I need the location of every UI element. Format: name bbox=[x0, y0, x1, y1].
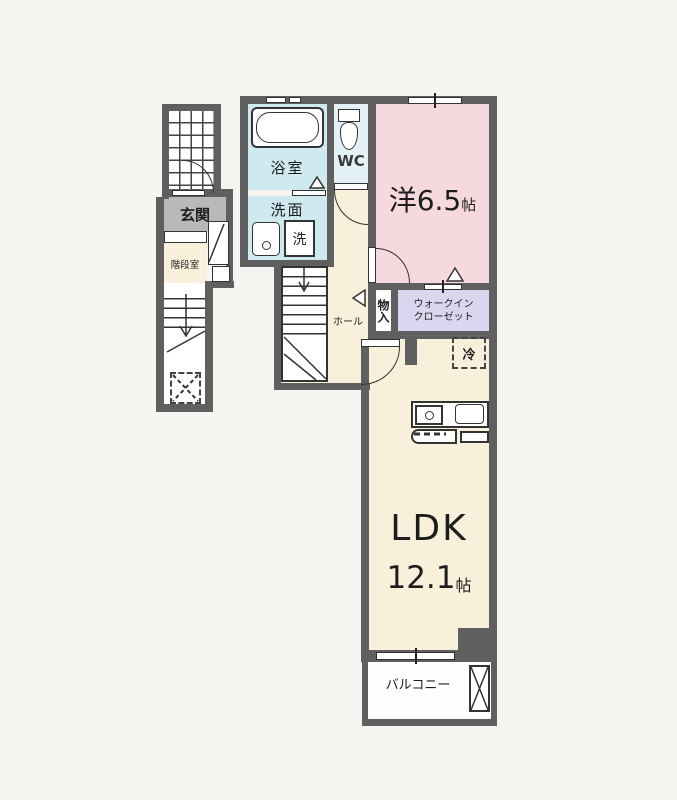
label-fridge: 冷 bbox=[452, 337, 486, 369]
label-western-room: 洋6.5帖 bbox=[376, 181, 489, 217]
window bbox=[408, 97, 462, 104]
window bbox=[424, 284, 462, 290]
window bbox=[376, 652, 455, 660]
wall bbox=[361, 347, 369, 662]
label-bath: 浴室 bbox=[248, 157, 327, 177]
washbasin-icon bbox=[252, 222, 280, 256]
door-leaf bbox=[368, 247, 376, 283]
wall bbox=[405, 339, 417, 365]
wall bbox=[362, 662, 368, 726]
sink-icon bbox=[455, 404, 484, 424]
wall bbox=[205, 281, 234, 288]
label-balcony: バルコニー bbox=[372, 674, 464, 692]
genkan-step bbox=[164, 231, 207, 243]
wall bbox=[458, 628, 497, 662]
washbasin-drain-icon bbox=[262, 241, 271, 250]
label-genkan: 玄関 bbox=[164, 197, 226, 231]
wall bbox=[274, 264, 281, 390]
bathtub-inner-line bbox=[256, 112, 319, 143]
stairs-treads bbox=[283, 268, 326, 338]
wall bbox=[156, 404, 213, 412]
wall bbox=[214, 104, 221, 196]
wall bbox=[491, 662, 497, 726]
label-stair-room: 階段室 bbox=[162, 257, 208, 271]
wall bbox=[391, 290, 398, 331]
stove-icon bbox=[415, 405, 443, 425]
wall bbox=[240, 96, 248, 267]
wall bbox=[162, 104, 169, 199]
label-ldk: LDK bbox=[369, 505, 489, 551]
wall bbox=[205, 288, 213, 412]
meter-box bbox=[212, 266, 230, 282]
window bbox=[289, 97, 301, 103]
label-hall: ホール bbox=[327, 314, 369, 327]
bathtub-icon bbox=[251, 107, 324, 148]
label-washer: 洗 bbox=[284, 220, 315, 257]
wall bbox=[162, 104, 221, 111]
label-closet: 物入 bbox=[376, 291, 391, 331]
label-washroom: 洗面 bbox=[248, 199, 327, 219]
floor-plan: 玄関 階段室 浴室 洗面 洗 WC 洋6.5帖 ホール 物入 ウォークインクロー… bbox=[0, 0, 677, 800]
label-ldk-size: 12.1帖 bbox=[369, 557, 489, 599]
wall bbox=[274, 383, 370, 390]
wall bbox=[327, 96, 334, 267]
room-ldk bbox=[369, 339, 489, 650]
wall bbox=[156, 197, 164, 412]
wall bbox=[368, 96, 376, 247]
toilet-icon bbox=[338, 109, 360, 122]
window bbox=[266, 97, 286, 103]
wall bbox=[489, 96, 497, 662]
balcony-partition bbox=[469, 665, 490, 712]
label-walkin-closet: ウォークインクローゼット bbox=[398, 292, 489, 330]
kitchen-lower-cabinet bbox=[411, 429, 457, 444]
kitchen-lower-cabinet bbox=[460, 431, 489, 443]
hatch-dashed-box bbox=[170, 372, 201, 404]
stairs-treads bbox=[164, 290, 205, 335]
door-leaf bbox=[361, 339, 400, 347]
door-leaf bbox=[334, 183, 368, 190]
door-leaf bbox=[292, 190, 326, 196]
burner-icon bbox=[425, 411, 434, 420]
wall bbox=[362, 719, 497, 726]
label-wc: WC bbox=[334, 150, 368, 172]
